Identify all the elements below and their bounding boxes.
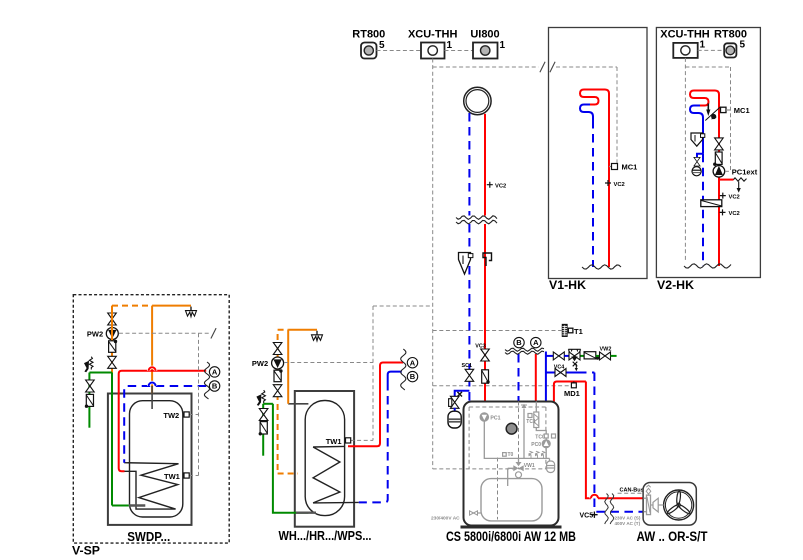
svg-text:TC0: TC0 <box>535 434 545 440</box>
svg-text:400V AC (T): 400V AC (T) <box>615 521 641 526</box>
svg-text:AW .. OR-S/T: AW .. OR-S/T <box>637 529 709 544</box>
svg-text:MC1: MC1 <box>622 163 638 172</box>
svg-text:TW1: TW1 <box>164 472 180 481</box>
svg-text:PC0: PC0 <box>531 442 541 448</box>
svg-text:A: A <box>533 338 539 347</box>
svg-text:B: B <box>516 338 522 347</box>
svg-text:SC1: SC1 <box>462 363 473 369</box>
svg-text:1: 1 <box>700 40 706 51</box>
svg-text:A: A <box>212 368 218 377</box>
svg-text:5: 5 <box>379 40 385 51</box>
svg-text:VC5: VC5 <box>580 513 594 520</box>
svg-text:VC2: VC2 <box>729 194 740 200</box>
svg-text:TC1: TC1 <box>526 419 536 425</box>
svg-text:V-SP: V-SP <box>72 544 100 556</box>
svg-text:A: A <box>410 358 416 367</box>
svg-text:T0: T0 <box>508 452 514 458</box>
svg-text:V1-HK: V1-HK <box>549 280 587 292</box>
svg-text:230V AC (S): 230V AC (S) <box>615 516 641 521</box>
svg-text:1: 1 <box>500 40 506 51</box>
svg-text:1: 1 <box>447 40 453 51</box>
svg-text:UI800: UI800 <box>470 29 499 41</box>
svg-text:PW2: PW2 <box>252 359 268 368</box>
svg-text:V2-HK: V2-HK <box>657 280 695 292</box>
svg-text:MD1: MD1 <box>564 389 580 398</box>
svg-text:PW2: PW2 <box>87 330 103 339</box>
svg-text:CAN-Bus: CAN-Bus <box>620 488 644 494</box>
svg-text:XCU-THH: XCU-THH <box>408 29 458 41</box>
svg-text:CS 5800i/6800i AW 12 MB: CS 5800i/6800i AW 12 MB <box>446 529 576 544</box>
svg-text:PC1: PC1 <box>490 416 500 422</box>
svg-text:VW2: VW2 <box>600 346 612 352</box>
svg-text:VC2: VC2 <box>495 183 506 189</box>
svg-text:RT800: RT800 <box>352 29 385 41</box>
svg-text:PC1ext: PC1ext <box>732 167 758 176</box>
svg-text:B: B <box>410 372 416 381</box>
svg-text:SWDP...: SWDP... <box>127 530 170 544</box>
svg-text:B: B <box>212 382 218 391</box>
svg-text:TW1: TW1 <box>326 437 342 446</box>
svg-text:MC1: MC1 <box>734 106 750 115</box>
svg-text:VW1: VW1 <box>524 463 535 469</box>
svg-text:5: 5 <box>740 40 746 51</box>
svg-text:TW2: TW2 <box>163 411 179 420</box>
svg-text:WH.../HR.../WPS...: WH.../HR.../WPS... <box>279 529 372 543</box>
svg-text:VC2: VC2 <box>614 182 625 188</box>
svg-text:230/400V AC: 230/400V AC <box>431 516 460 522</box>
svg-text:T1: T1 <box>574 327 583 336</box>
svg-text:VC2: VC2 <box>729 211 740 217</box>
